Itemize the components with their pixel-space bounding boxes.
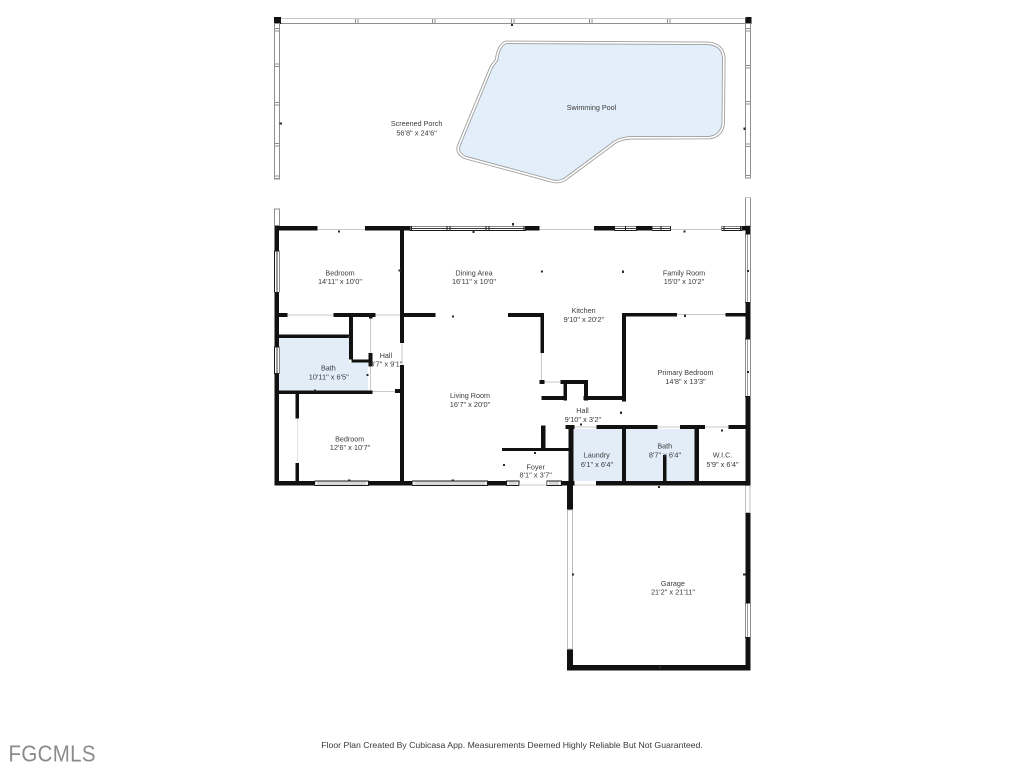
svg-text:Floor Plan Created By Cubicasa: Floor Plan Created By Cubicasa App. Meas… <box>321 740 702 750</box>
svg-text:FGCMLS: FGCMLS <box>9 740 96 766</box>
svg-text:Laundry: Laundry <box>584 451 610 460</box>
svg-text:Garage: Garage <box>661 579 685 588</box>
svg-text:Bath: Bath <box>657 442 672 451</box>
svg-text:Screened Porch: Screened Porch <box>391 119 443 128</box>
svg-text:10'11" x 6'5": 10'11" x 6'5" <box>309 373 349 382</box>
svg-text:Hall: Hall <box>576 406 589 415</box>
svg-text:Swimming Pool: Swimming Pool <box>567 103 617 112</box>
svg-text:Family Room: Family Room <box>663 268 705 277</box>
svg-text:14'8" x 13'3": 14'8" x 13'3" <box>665 377 706 386</box>
svg-text:9'10" x 3'2": 9'10" x 3'2" <box>565 415 602 424</box>
svg-text:56'8" x 24'6": 56'8" x 24'6" <box>396 128 437 137</box>
svg-text:15'0" x 10'2": 15'0" x 10'2" <box>664 277 705 286</box>
svg-text:9'10" x 20'2": 9'10" x 20'2" <box>564 315 605 324</box>
svg-text:W.I.C.: W.I.C. <box>713 451 733 460</box>
svg-text:Living Room: Living Room <box>450 391 490 400</box>
svg-text:3'7" x 9'1": 3'7" x 9'1" <box>370 360 403 369</box>
svg-text:Bedroom: Bedroom <box>325 268 354 277</box>
svg-text:8'7" x 6'4": 8'7" x 6'4" <box>649 450 682 459</box>
svg-text:12'6" x 10'7": 12'6" x 10'7" <box>330 443 371 452</box>
svg-text:Primary Bedroom: Primary Bedroom <box>658 368 714 377</box>
svg-text:8'1" x 3'7": 8'1" x 3'7" <box>520 471 553 480</box>
svg-text:Dining Area: Dining Area <box>455 268 492 277</box>
svg-text:21'2" x 21'11": 21'2" x 21'11" <box>651 588 695 597</box>
svg-text:14'11" x 10'0": 14'11" x 10'0" <box>318 277 362 286</box>
svg-text:5'9" x 6'4": 5'9" x 6'4" <box>706 460 739 469</box>
svg-text:Bath: Bath <box>321 364 336 373</box>
svg-text:16'7" x 20'0": 16'7" x 20'0" <box>450 400 491 409</box>
svg-text:Kitchen: Kitchen <box>572 306 596 315</box>
svg-text:Hall: Hall <box>380 351 393 360</box>
svg-text:6'1" x 6'4": 6'1" x 6'4" <box>581 460 614 469</box>
svg-text:16'11" x 10'0": 16'11" x 10'0" <box>452 277 496 286</box>
